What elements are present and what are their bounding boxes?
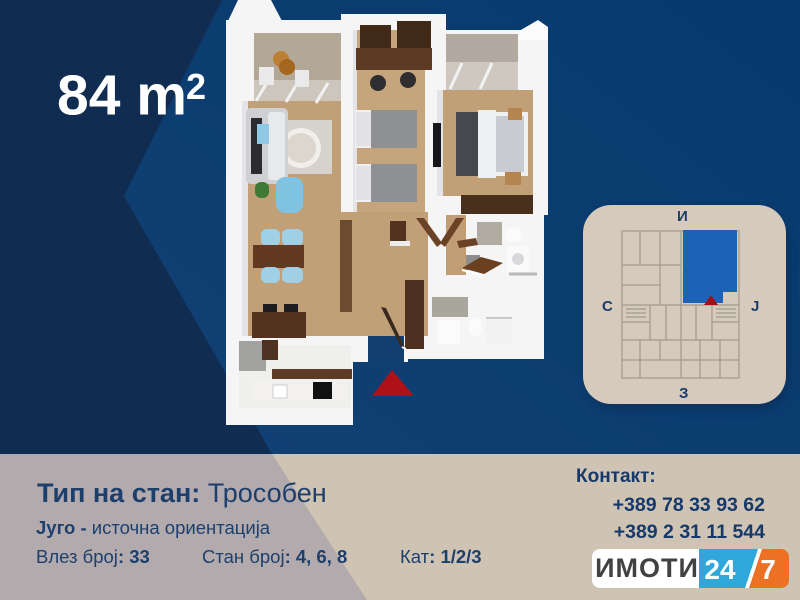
svg-text:2: 2 xyxy=(186,66,206,107)
svg-text:84 m: 84 m xyxy=(57,64,187,128)
svg-text:24: 24 xyxy=(704,554,736,585)
svg-text:7: 7 xyxy=(760,554,776,585)
